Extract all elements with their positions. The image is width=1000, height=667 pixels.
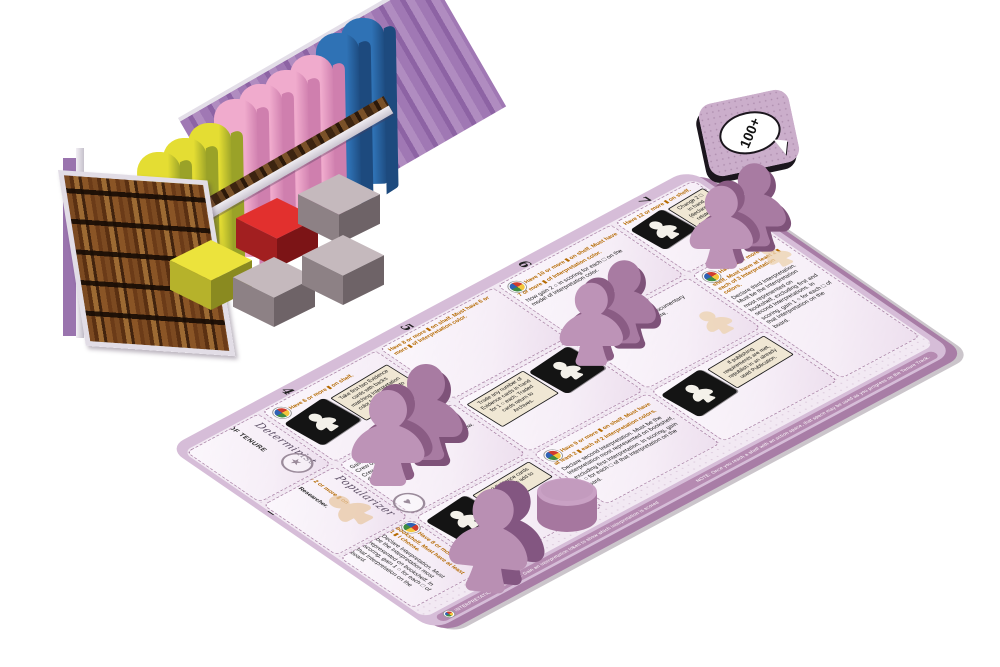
token-100-label: 100+ [736, 115, 763, 150]
white-meeple-icon [674, 378, 725, 409]
purple-double-meeple[interactable] [678, 148, 808, 298]
resource-cube-gray[interactable] [302, 235, 384, 305]
purple-disc-token[interactable] [535, 476, 599, 538]
resource-cube-gray[interactable] [298, 174, 380, 244]
purple-double-meeple[interactable] [548, 250, 678, 390]
tan-meeple-watermark [684, 303, 746, 341]
start-label: START OF TENURE TRACK [196, 413, 282, 466]
